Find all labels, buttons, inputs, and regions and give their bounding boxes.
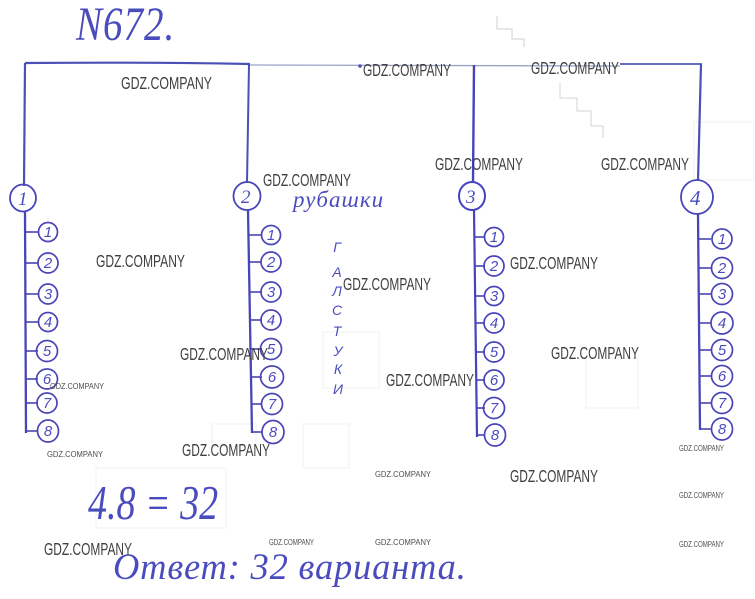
svg-text:7: 7 (268, 396, 277, 413)
svg-text:GDZ.COMPANY: GDZ.COMPANY (386, 370, 474, 390)
svg-text:2: 2 (43, 255, 53, 272)
svg-text:GDZ.COMPANY: GDZ.COMPANY (47, 449, 103, 459)
svg-text:GDZ.COMPANY: GDZ.COMPANY (679, 539, 724, 549)
svg-text:1: 1 (490, 229, 498, 246)
svg-text:GDZ.COMPANY: GDZ.COMPANY (363, 60, 451, 80)
svg-text:1: 1 (44, 224, 52, 241)
svg-text:Ответ: 32 варианта.: Ответ: 32 варианта. (113, 546, 467, 587)
svg-text:2: 2 (489, 258, 499, 275)
svg-text:1: 1 (267, 227, 275, 244)
svg-text:3: 3 (44, 286, 53, 303)
svg-text:GDZ.COMPANY: GDZ.COMPANY (269, 537, 314, 547)
svg-text:8: 8 (269, 424, 278, 441)
svg-text:И: И (333, 381, 344, 397)
svg-text:рубашки: рубашки (291, 187, 384, 212)
svg-text:GDZ.COMPANY: GDZ.COMPANY (679, 490, 724, 500)
svg-text:2: 2 (241, 187, 251, 208)
svg-text:4: 4 (490, 315, 498, 332)
svg-text:С: С (332, 302, 343, 318)
svg-text:GDZ.COMPANY: GDZ.COMPANY (510, 466, 598, 486)
svg-text:7: 7 (490, 400, 499, 417)
svg-text:4: 4 (44, 314, 52, 331)
svg-text:N672.: N672. (75, 0, 175, 51)
svg-text:4: 4 (690, 186, 701, 210)
svg-text:Т: Т (333, 323, 343, 339)
svg-text:GDZ.COMPANY: GDZ.COMPANY (510, 253, 598, 273)
svg-text:GDZ.COMPANY: GDZ.COMPANY (121, 73, 212, 93)
svg-text:GDZ.COMPANY: GDZ.COMPANY (180, 344, 268, 364)
svg-text:GDZ.COMPANY: GDZ.COMPANY (50, 381, 104, 391)
svg-text:4: 4 (718, 315, 726, 332)
svg-text:GDZ.COMPANY: GDZ.COMPANY (551, 343, 639, 363)
svg-text:2: 2 (266, 254, 276, 271)
svg-text:5: 5 (490, 344, 499, 361)
svg-text:А: А (331, 264, 341, 280)
svg-text:GDZ.COMPANY: GDZ.COMPANY (601, 154, 689, 174)
svg-text:GDZ.COMPANY: GDZ.COMPANY (343, 274, 431, 294)
svg-text:GDZ.COMPANY: GDZ.COMPANY (263, 170, 351, 190)
svg-text:GDZ.COMPANY: GDZ.COMPANY (679, 443, 724, 453)
svg-text:Л: Л (331, 283, 342, 299)
svg-text:Г: Г (333, 239, 342, 255)
svg-text:5: 5 (267, 341, 276, 358)
svg-text:4: 4 (267, 312, 275, 329)
svg-text:GDZ.COMPANY: GDZ.COMPANY (375, 537, 431, 547)
svg-text:7: 7 (718, 395, 727, 412)
svg-text:8: 8 (718, 421, 727, 438)
svg-text:8: 8 (44, 423, 53, 440)
svg-text:2: 2 (717, 260, 727, 277)
svg-text:3: 3 (267, 284, 276, 301)
svg-text:5: 5 (718, 342, 727, 359)
svg-text:GDZ.COMPANY: GDZ.COMPANY (96, 251, 185, 271)
svg-text:4.8 = 32: 4.8 = 32 (88, 477, 218, 530)
svg-text:8: 8 (491, 427, 500, 444)
svg-text:6: 6 (268, 369, 277, 386)
svg-text:3: 3 (465, 187, 476, 208)
svg-text:GDZ.COMPANY: GDZ.COMPANY (182, 440, 270, 460)
svg-text:3: 3 (718, 286, 727, 303)
svg-text:1: 1 (718, 231, 726, 248)
svg-text:3: 3 (490, 288, 499, 305)
svg-text:GDZ.COMPANY: GDZ.COMPANY (531, 58, 619, 78)
svg-text:6: 6 (718, 368, 727, 385)
svg-text:5: 5 (43, 343, 52, 360)
svg-text:6: 6 (490, 372, 499, 389)
svg-text:У: У (333, 343, 345, 359)
svg-text:GDZ.COMPANY: GDZ.COMPANY (435, 154, 523, 174)
svg-text:1: 1 (18, 189, 28, 210)
svg-text:GDZ.COMPANY: GDZ.COMPANY (375, 469, 431, 479)
svg-text:7: 7 (43, 395, 52, 412)
svg-text:GDZ.COMPANY: GDZ.COMPANY (44, 539, 132, 559)
svg-text:К: К (334, 361, 343, 377)
